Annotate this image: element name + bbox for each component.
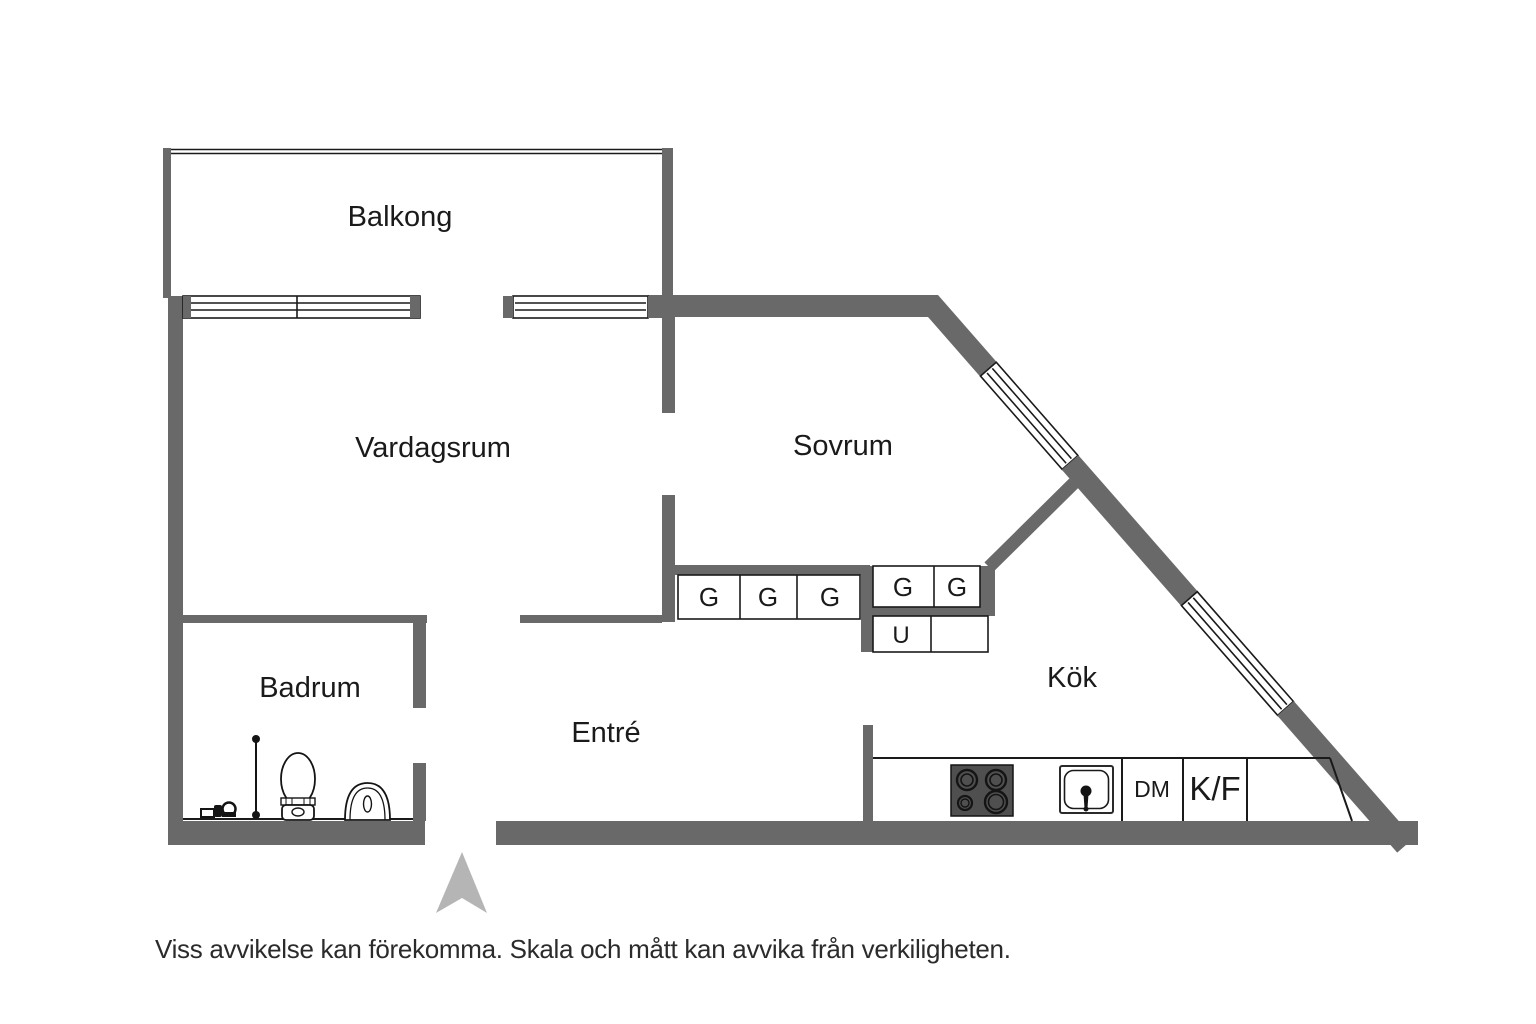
cabinet-label-g4: G [893,572,913,602]
livingroom-bathroom-wall [183,615,427,623]
cabinet-label-g3: G [820,582,840,612]
hall-kitchen-wall [863,725,873,821]
room-label-bathroom: Badrum [259,672,361,704]
floor-plan: G G G G G U DM K/F [0,0,1536,1024]
cabinet-label-g5: G [947,572,967,602]
exterior-left-wall [168,296,183,845]
wardrobe-row-bedroom: G G G [678,575,860,619]
room-label-bedroom: Sovrum [793,430,893,462]
south-wall-left [168,821,425,845]
kitchen-cabinet-wall-right [980,566,995,616]
room-label-kitchen: Kök [1047,662,1097,694]
disclaimer-text: Viss avvikelse kan förekomma. Skala och … [155,934,1011,964]
stove-hob-icon [951,765,1013,816]
balcony-window-right [503,296,662,318]
bathroom-east-wall-lower [413,763,426,821]
entry-north-wall [520,615,662,623]
room-label-living-room: Vardagsrum [355,432,511,464]
floor-plan-page: G G G G G U DM K/F [0,0,1536,1024]
appliance-label-dishwasher: DM [1134,776,1170,802]
appliance-label-fridge-freezer: K/F [1189,770,1240,807]
balcony-right-wall [662,148,673,295]
toilet-icon [281,753,315,820]
bedroom-north-wall [648,295,938,317]
bathroom-east-wall-upper [413,623,426,708]
south-wall-right [496,821,1418,845]
cabinet-label-g1: G [699,582,719,612]
balcony-window-left [183,296,420,318]
bedroom-west-wall-upper [662,317,675,413]
sink-icon [1060,766,1113,813]
cabinet-label-g2: G [758,582,778,612]
cabinet-label-u: U [892,622,909,649]
balcony-left-wall [163,148,171,298]
room-label-balcony: Balkong [348,201,453,233]
kitchen-cabinet-wall-bottom [861,607,995,616]
wardrobe-north-wall [662,565,870,575]
room-label-entry: Entré [571,717,640,749]
bedroom-west-wall-lower [662,495,675,622]
